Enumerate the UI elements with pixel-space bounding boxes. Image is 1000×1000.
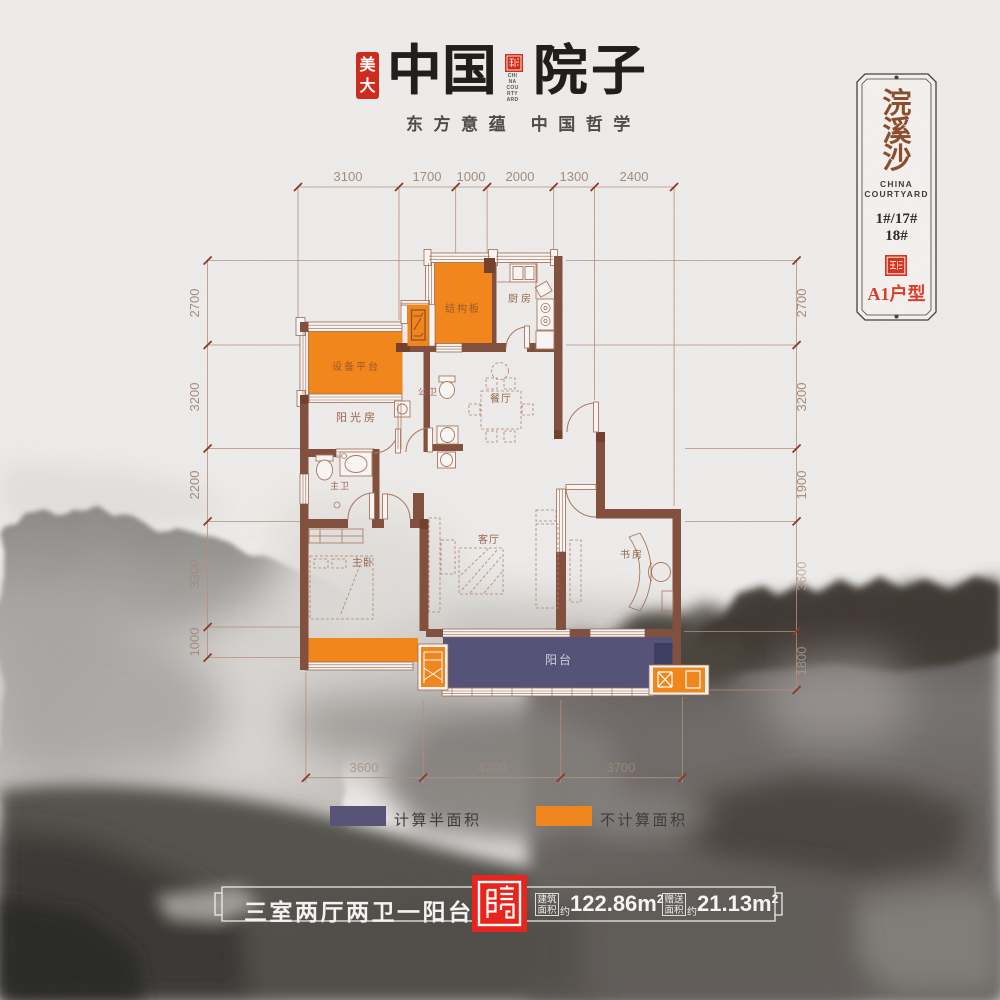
svg-text:结构板: 结构板 [445,302,481,315]
svg-text:3200: 3200 [794,383,809,412]
svg-text:主卧: 主卧 [352,556,374,569]
svg-text:书房: 书房 [620,548,644,561]
svg-text:厨房: 厨房 [508,292,534,305]
svg-text:阳光房: 阳光房 [336,410,378,424]
svg-text:3300: 3300 [187,560,202,589]
svg-text:2700: 2700 [187,289,202,318]
svg-text:3700: 3700 [607,760,636,775]
svg-text:公卫: 公卫 [418,387,438,397]
svg-text:餐厅: 餐厅 [490,392,512,405]
svg-text:1700: 1700 [413,169,442,184]
svg-text:2700: 2700 [794,289,809,318]
svg-text:3600: 3600 [794,562,809,591]
svg-text:客厅: 客厅 [478,533,500,546]
svg-text:4200: 4200 [478,760,507,775]
svg-text:1000: 1000 [187,628,202,657]
svg-text:1900: 1900 [794,471,809,500]
svg-text:1000: 1000 [457,169,486,184]
svg-text:2000: 2000 [506,169,535,184]
svg-text:主卫: 主卫 [330,480,350,491]
svg-text:3600: 3600 [350,760,379,775]
svg-text:3100: 3100 [334,169,363,184]
svg-text:2400: 2400 [620,169,649,184]
svg-text:3200: 3200 [187,383,202,412]
svg-text:设备平台: 设备平台 [332,360,380,373]
svg-text:阳台: 阳台 [545,652,573,667]
svg-text:2200: 2200 [187,471,202,500]
svg-text:1300: 1300 [560,169,589,184]
svg-text:1800: 1800 [794,647,809,676]
